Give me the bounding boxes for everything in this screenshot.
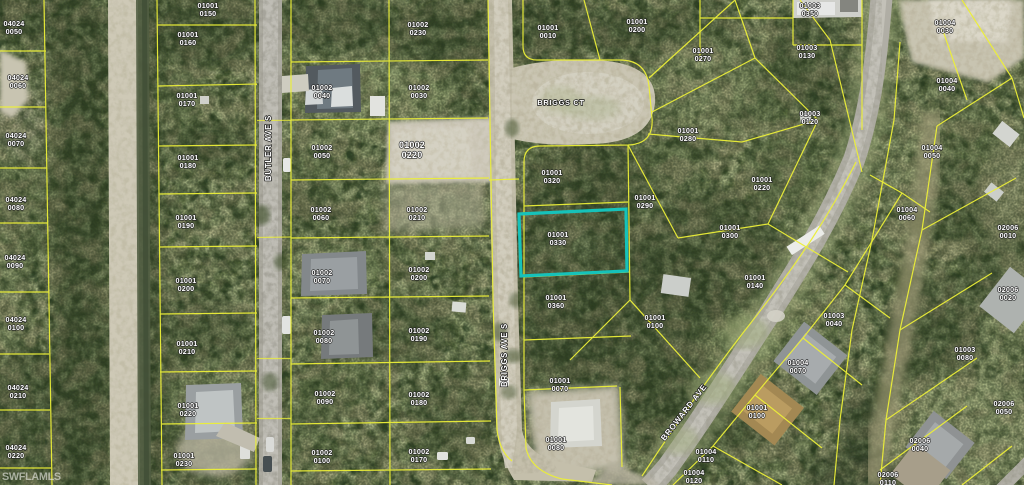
svg-text:SWFLAMLS: SWFLAMLS xyxy=(2,471,61,483)
svg-text:010010150: 010010150 xyxy=(198,1,219,18)
svg-text:010040030: 010040030 xyxy=(935,18,956,35)
svg-text:020060040: 020060040 xyxy=(910,436,931,453)
svg-text:BRIGGS AVE S: BRIGGS AVE S xyxy=(500,323,509,387)
svg-text:040240050: 040240050 xyxy=(4,19,25,36)
svg-text:010010280: 010010280 xyxy=(678,126,699,143)
svg-text:010010220: 010010220 xyxy=(178,401,199,418)
svg-text:010010300: 010010300 xyxy=(720,223,741,240)
svg-text:040240060: 040240060 xyxy=(8,73,29,90)
svg-text:010010330: 010010330 xyxy=(548,230,569,247)
svg-text:010020090: 010020090 xyxy=(315,389,336,406)
svg-text:010010100: 010010100 xyxy=(747,403,768,420)
svg-text:010020200: 010020200 xyxy=(409,265,430,282)
svg-text:010010220: 010010220 xyxy=(752,175,773,192)
svg-text:010010320: 010010320 xyxy=(542,168,563,185)
svg-text:010030120: 010030120 xyxy=(800,109,821,126)
svg-text:020060010: 020060010 xyxy=(998,223,1019,240)
svg-text:020060110: 020060110 xyxy=(878,470,899,485)
svg-text:040240090: 040240090 xyxy=(5,253,26,270)
svg-text:010020060: 010020060 xyxy=(311,205,332,222)
svg-text:010010140: 010010140 xyxy=(745,273,766,290)
svg-text:010010160: 010010160 xyxy=(178,30,199,47)
svg-text:010010190: 010010190 xyxy=(176,213,197,230)
svg-text:010010100: 010010100 xyxy=(645,313,666,330)
svg-text:010040050: 010040050 xyxy=(922,143,943,160)
svg-text:010040040: 010040040 xyxy=(937,76,958,93)
svg-text:040240210: 040240210 xyxy=(8,383,29,400)
svg-text:020060020: 020060020 xyxy=(998,285,1019,302)
svg-text:040240080: 040240080 xyxy=(6,195,27,212)
svg-text:010010230: 010010230 xyxy=(174,451,195,468)
svg-text:020060050: 020060050 xyxy=(994,399,1015,416)
svg-text:010030350: 010030350 xyxy=(800,1,821,18)
svg-text:010010200: 010010200 xyxy=(176,276,197,293)
svg-text:010040070: 010040070 xyxy=(788,358,809,375)
svg-text:010040120: 010040120 xyxy=(684,468,705,485)
svg-text:010040110: 010040110 xyxy=(696,447,717,464)
svg-text:BRIGGS CT: BRIGGS CT xyxy=(537,98,584,107)
svg-text:010010180: 010010180 xyxy=(178,153,199,170)
svg-text:040240070: 040240070 xyxy=(6,131,27,148)
svg-text:010020080: 010020080 xyxy=(314,328,335,345)
svg-text:010020220: 010020220 xyxy=(399,140,425,160)
svg-text:010020180: 010020180 xyxy=(409,390,430,407)
svg-text:010020070: 010020070 xyxy=(312,268,333,285)
svg-text:010010170: 010010170 xyxy=(177,91,198,108)
svg-text:010030080: 010030080 xyxy=(955,345,976,362)
svg-text:010010200: 010010200 xyxy=(627,17,648,34)
svg-text:010020210: 010020210 xyxy=(407,205,428,222)
svg-text:040240100: 040240100 xyxy=(6,315,27,332)
svg-text:010030040: 010030040 xyxy=(824,311,845,328)
svg-text:010020030: 010020030 xyxy=(409,83,430,100)
svg-text:010040060: 010040060 xyxy=(897,205,918,222)
svg-text:010020230: 010020230 xyxy=(408,20,429,37)
svg-text:BUTLER AVE S: BUTLER AVE S xyxy=(264,115,273,181)
svg-text:010020050: 010020050 xyxy=(312,143,333,160)
svg-text:010010360: 010010360 xyxy=(546,293,567,310)
svg-text:010010270: 010010270 xyxy=(693,46,714,63)
svg-text:010010010: 010010010 xyxy=(538,23,559,40)
svg-text:010010070: 010010070 xyxy=(550,376,571,393)
svg-text:010010080: 010010080 xyxy=(546,435,567,452)
svg-text:010010290: 010010290 xyxy=(635,193,656,210)
svg-text:010020190: 010020190 xyxy=(409,326,430,343)
svg-text:010020170: 010020170 xyxy=(409,447,430,464)
svg-text:010010210: 010010210 xyxy=(177,339,198,356)
svg-text:010020040: 010020040 xyxy=(312,83,333,100)
svg-text:040240220: 040240220 xyxy=(6,443,27,460)
svg-text:010020100: 010020100 xyxy=(312,448,333,465)
svg-text:010030130: 010030130 xyxy=(797,43,818,60)
